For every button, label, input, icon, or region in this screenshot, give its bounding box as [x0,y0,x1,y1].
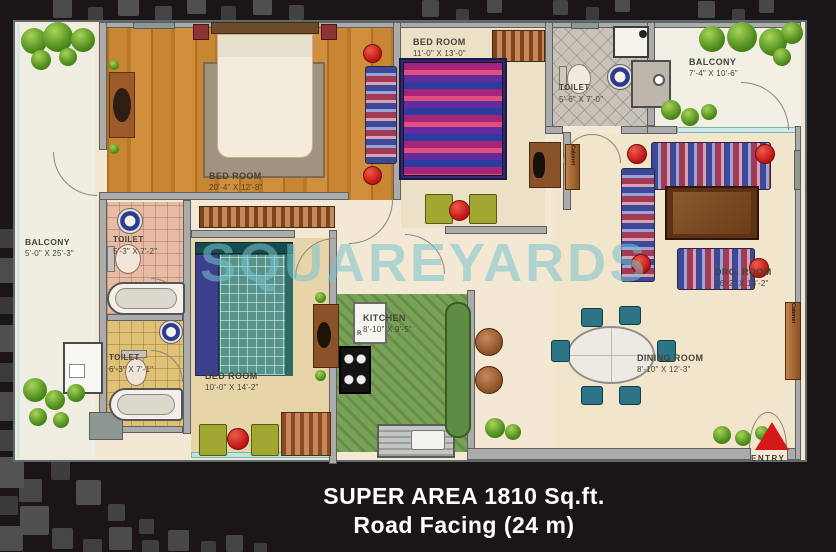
master-bedroom-name: BED ROOM [209,171,262,181]
hall-cabinet-label: Cabinet [570,145,576,165]
toilet-upper-name: TOILET [113,235,144,244]
master-bedroom-dims: 20'-4" X 12'-8" [209,182,263,194]
wall-balcony-right-bottom [647,126,677,134]
drawing-room-dims: 16'-2" X 18'-2" [715,278,772,290]
room-label-master-bedroom: BED ROOM20'-4" X 12'-8" [209,170,263,194]
toilet-top-sink [607,64,633,90]
dining-bush-1 [485,418,505,438]
background-dots-pattern [0,0,1,1]
balcony-right-tree-5 [773,48,791,66]
balcony-left-bush-3 [67,384,85,402]
dining-chair-1 [581,308,603,327]
dining-chair-2 [619,306,641,325]
dining-bush-2 [505,424,521,440]
window-sill-top-3 [571,22,599,29]
balcony-right-tree-1 [699,26,725,52]
bedroom3-table [227,428,249,450]
room-label-balcony-left: BALCONY5'-0" X 25'-3" [25,236,74,260]
drawing-cabinet: Cabinet [785,302,801,380]
room-label-bedroom3: BED ROOM10'-0" X 14'-2" [205,370,259,394]
caption: SUPER AREA 1810 Sq.ft. Road Facing (24 m… [92,482,836,540]
toilet-lower-dims: 6'-3" X 7'-1" [109,364,153,376]
drawing-room-name: DRG. ROOM [715,267,772,277]
master-bed [217,34,313,158]
fridge-label: R [357,331,361,337]
toilet-lower-name: TOILET [109,353,140,362]
room-label-kitchen: KITCHEN8'-10" X 9'-5" [363,312,412,336]
room-label-drawing-room: DRG. ROOM16'-2" X 18'-2" [715,266,772,290]
room-label-toilet-upper: TOILET5'-3" X 7'-2" [113,234,157,258]
toilet-top-shower-head [639,30,647,38]
dining-room-dims: 8'-10" X 12'-3" [637,364,703,376]
toilet-top-name: TOILET [559,83,590,92]
toilet-upper-bathtub-basin [115,288,177,309]
kitchen-sink [411,430,445,450]
bedroom2-dims: 11'-0" X 13'-0" [413,48,466,60]
wall-balcony-left-lower [99,194,107,434]
balcony-right-bush-3 [701,104,717,120]
dining-bush-4 [735,430,751,446]
bedroom2-name: BED ROOM [413,37,466,47]
window-sill-right-1 [794,150,801,190]
floorplan-screenshot: Cabinet Cabinet [0,0,836,552]
squareyards-watermark: SQUAREYARDS [200,232,648,294]
master-dresser-mirror [113,88,131,122]
balcony-left-tree-3 [71,28,95,52]
drawing-coffee-table-top [673,192,751,234]
toilet-lower-bathtub-basin [117,394,175,415]
room-label-balcony-right: BALCONY7'-4" X 10'-6" [689,56,738,80]
dining-chair-4 [619,386,641,405]
dining-bush-3 [713,426,731,444]
master-headboard [211,22,319,34]
dining-room-name: DINING ROOM [637,353,703,363]
kitchen-island [445,302,471,438]
bedroom3-chair-left [199,424,227,456]
corridor-wardrobe [199,206,335,228]
drawing-cabinet-label: Cabinet [790,303,796,323]
wall-toilet-top-left [545,22,553,134]
balcony-left-bush-4 [29,408,47,426]
bedroom2-bed [403,62,503,176]
bedroom3-rug [281,412,331,456]
balcony-left-bush-5 [53,412,69,428]
balcony-right-dims: 7'-4" X 10'-6" [689,68,738,80]
dining-chair-5 [551,340,570,362]
master-plant-bottom [109,144,119,154]
toilet-upper-sink [117,208,143,234]
master-side-table-right [321,24,337,40]
room-label-bedroom2: BED ROOM11'-0" X 13'-0" [413,36,466,60]
balcony-right-bush-2 [681,108,699,126]
caption-super-area: SUPER AREA 1810 Sq.ft. [92,482,836,511]
side-table-round-1 [475,328,503,356]
dining-chair-3 [581,386,603,405]
master-couch [365,66,397,164]
toilet-top-dims: 5'-6" X 7'-0" [559,94,603,106]
room-label-toilet-lower: TOILET6'-3" X 7'-1" [109,352,153,376]
side-table-round-2 [475,366,503,394]
entry-arrow-icon [755,422,789,450]
drawing-sofa-3seat [651,142,771,190]
bedroom3-name: BED ROOM [205,371,258,381]
wall-toilet-top-bottom-a [545,126,563,134]
master-stool-top [363,44,382,63]
master-stool-bottom [363,166,382,185]
balcony-washbasin [69,364,85,378]
bedroom2-table [449,200,470,221]
balcony-left-bush-2 [45,390,65,410]
bedroom3-desk-chair [317,322,331,348]
bedroom3-plant-bottom [315,370,326,381]
balcony-left-tree-5 [59,48,77,66]
balcony-right-tree-2 [727,22,757,52]
toilet-upper-dims: 5'-3" X 7'-2" [113,246,157,258]
hall-cabinet: Cabinet [565,144,580,190]
kitchen-stove [339,346,371,394]
floor-plan: Cabinet Cabinet [13,20,807,462]
kitchen-dims: 8'-10" X 9'-5" [363,324,412,336]
hall-desk-screen [533,152,545,178]
room-label-dining-room: DINING ROOM8'-10" X 12'-3" [637,352,703,376]
master-side-table-left [193,24,209,40]
wall-toilets-right [183,200,191,434]
drawing-stool-2 [755,144,775,164]
drawing-stool-1 [627,144,647,164]
balcony-right-bush-1 [661,100,681,120]
window-sill-top-1 [133,22,175,29]
bedroom3-chair-right [251,424,279,456]
master-plant-top [109,60,119,70]
toilet-lower-sink [159,320,183,344]
balcony-left-tree-4 [31,50,51,70]
shaft-fitting [653,74,665,86]
caption-road-facing: Road Facing (24 m) [92,511,836,540]
balcony-left-dims: 5'-0" X 25'-3" [25,248,74,260]
room-label-toilet-top: TOILET5'-6" X 7'-0" [559,82,603,106]
bedroom3-dims: 10'-0" X 14'-2" [205,382,259,394]
wall-balcony-left-upper [99,22,107,150]
entry-label: ENTRY [751,454,785,463]
balcony-left-name: BALCONY [25,237,70,247]
balcony-left-bush-1 [23,378,47,402]
balcony-right-tree-4 [781,22,803,44]
bedroom2-chair-right [469,194,497,224]
wall-bottom-main [467,448,751,460]
kitchen-name: KITCHEN [363,313,406,323]
balcony-right-name: BALCONY [689,57,736,67]
